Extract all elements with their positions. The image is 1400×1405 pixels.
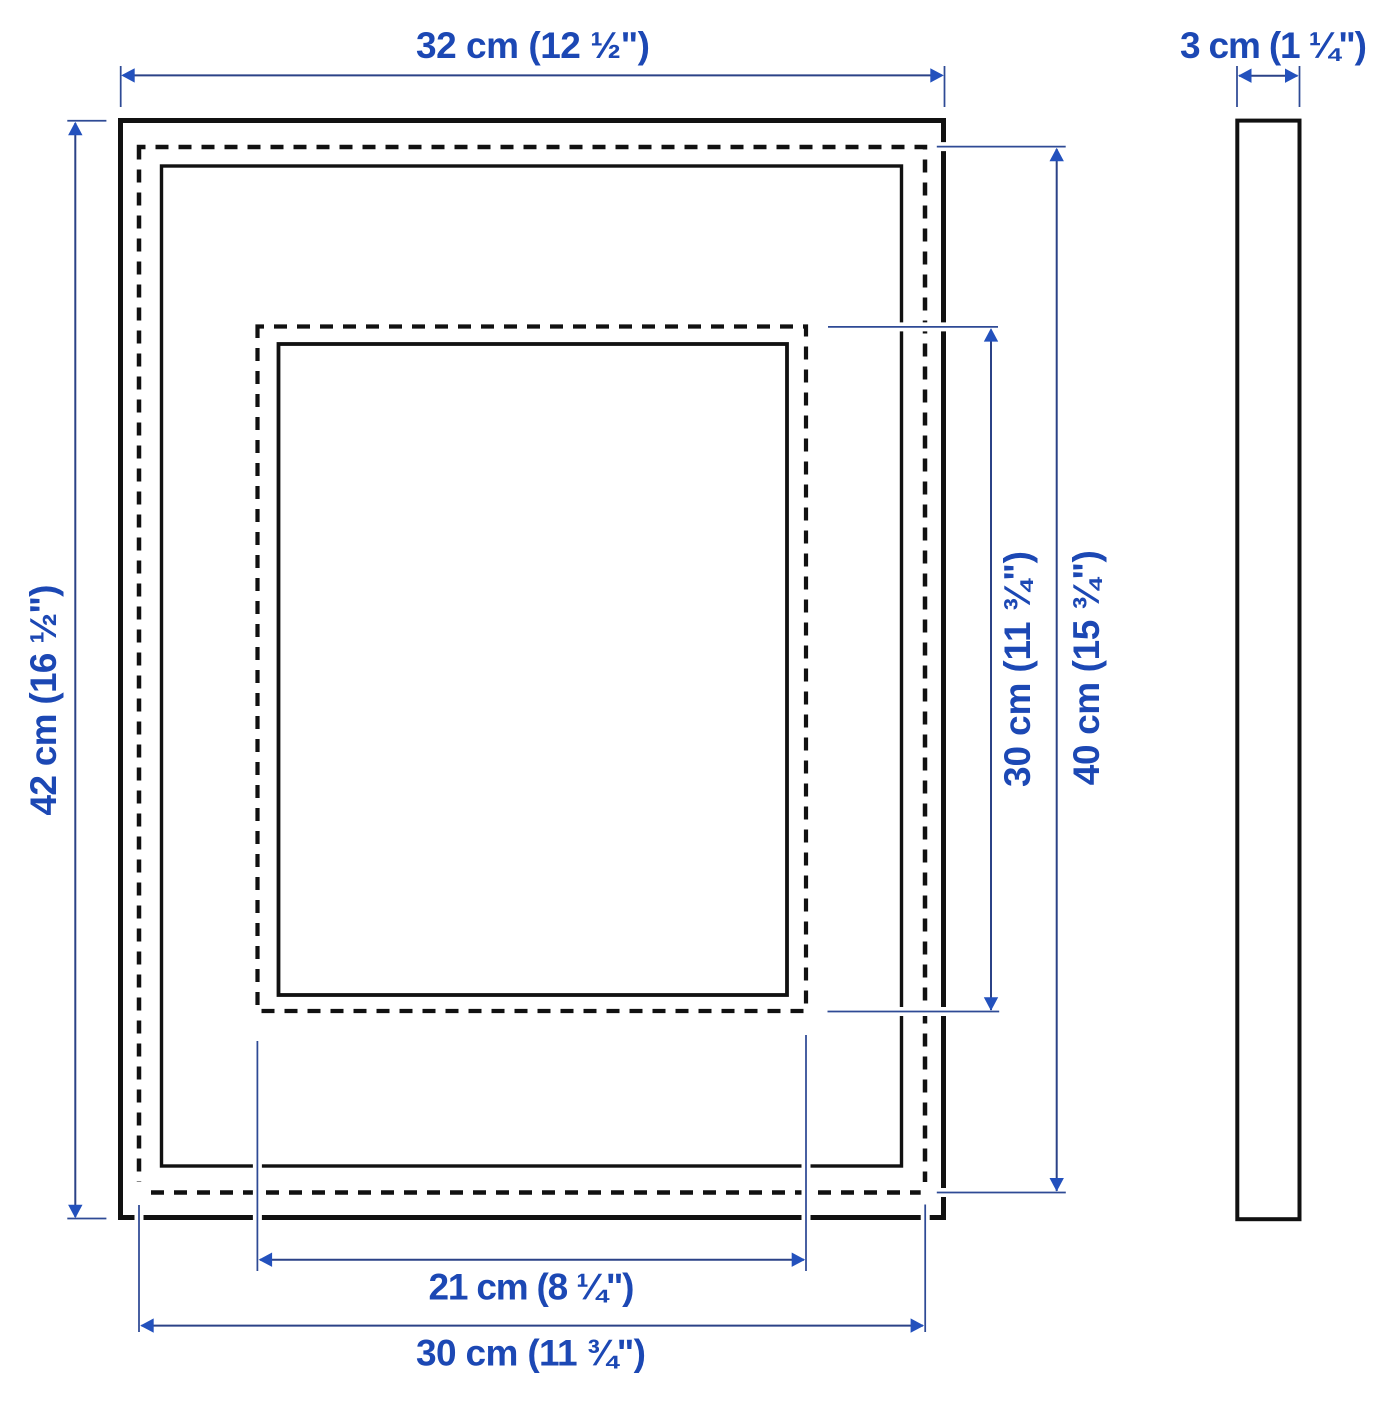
svg-text:42 cm (16 ½"): 42 cm (16 ½") — [23, 585, 64, 816]
svg-text:40 cm (15 ¾"): 40 cm (15 ¾") — [1066, 550, 1107, 785]
svg-text:3 cm (1 ¼"): 3 cm (1 ¼") — [1180, 25, 1367, 66]
svg-text:30 cm (11 ¾"): 30 cm (11 ¾") — [997, 551, 1038, 787]
svg-text:30 cm (11 ¾"): 30 cm (11 ¾") — [416, 1333, 646, 1374]
svg-text:21 cm (8 ¼"): 21 cm (8 ¼") — [429, 1267, 635, 1308]
svg-text:32 cm (12 ½"): 32 cm (12 ½") — [416, 25, 650, 66]
